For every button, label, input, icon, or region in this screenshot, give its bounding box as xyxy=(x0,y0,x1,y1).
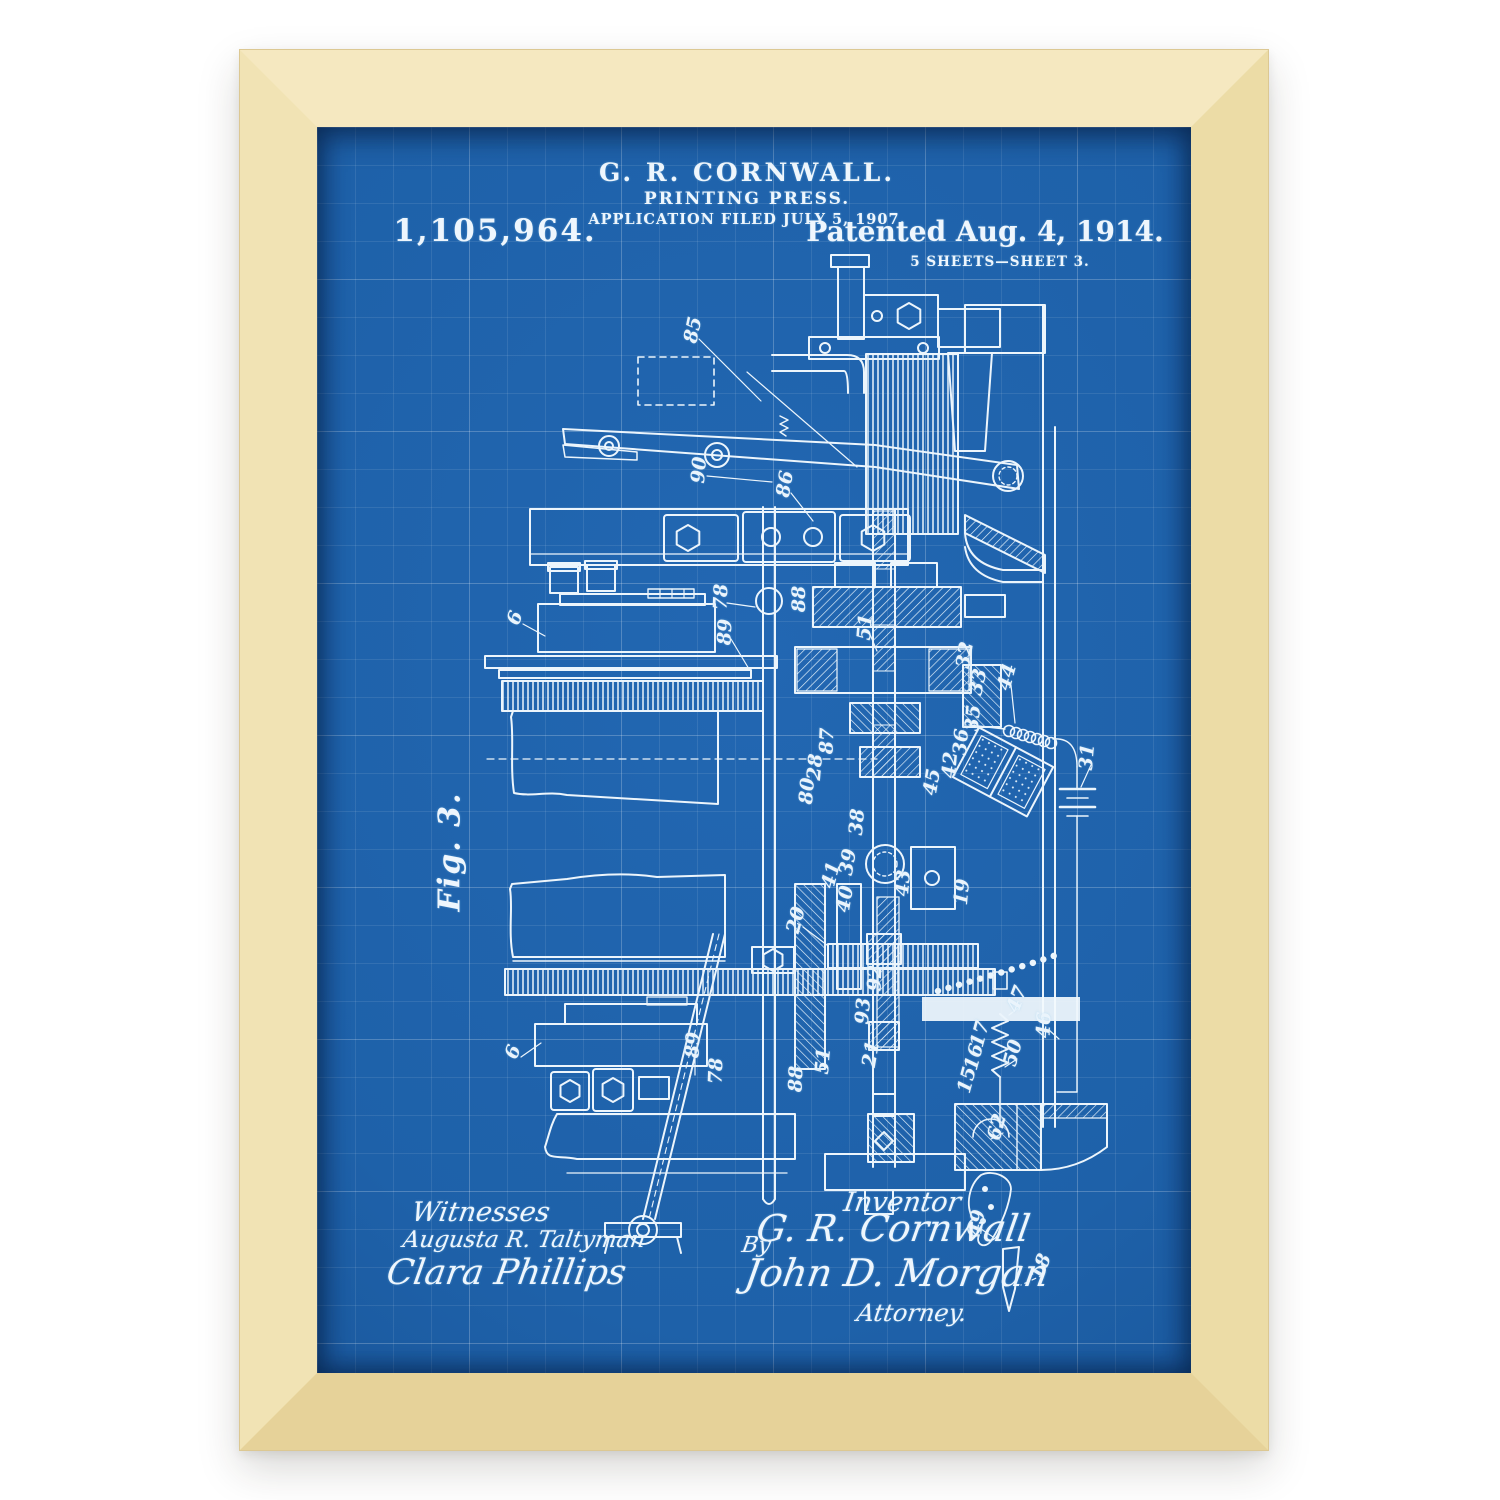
witnesses-heading: Witnesses xyxy=(410,1197,553,1228)
part-label-38: 38 xyxy=(845,808,869,836)
patent-drawing xyxy=(317,127,1191,1373)
part-label-32: 32 xyxy=(952,640,978,670)
sheet-number-line: 5 SHEETS—SHEET 3. xyxy=(910,254,1089,270)
part-label-31: 31 xyxy=(1075,743,1099,771)
part-label-92: 92 xyxy=(864,964,887,991)
blueprint-sheet: G. R. CORNWALL. PRINTING PRESS. APPLICAT… xyxy=(317,127,1191,1373)
part-label-43: 43 xyxy=(891,869,915,897)
part-label-80: 80 xyxy=(795,777,819,805)
product-photo: G. R. CORNWALL. PRINTING PRESS. APPLICAT… xyxy=(0,0,1500,1500)
part-label-89: 89 xyxy=(714,618,737,645)
part-label-21: 21 xyxy=(858,1039,884,1069)
part-label-86: 86 xyxy=(772,469,798,499)
part-label-78: 78 xyxy=(705,1057,728,1084)
part-label-51: 51 xyxy=(853,613,877,641)
part-label-90: 90 xyxy=(687,456,711,484)
figure-label: Fig. 3. xyxy=(433,792,468,912)
attorney-signature: John D. Morgan xyxy=(742,1251,1053,1295)
patent-number: 1,105,964. xyxy=(393,213,596,249)
part-label-40: 40 xyxy=(832,884,858,914)
inventor-signature: G. R. Cornwall xyxy=(754,1207,1033,1250)
patent-date-line: Patented Aug. 4, 1914. xyxy=(806,215,1163,248)
patent-inventor-line: G. R. CORNWALL. xyxy=(599,158,895,187)
part-label-87: 87 xyxy=(816,727,839,754)
part-label-78: 78 xyxy=(710,583,733,610)
witness-signature-2: Clara Phillips xyxy=(384,1253,629,1293)
part-label-51: 51 xyxy=(811,1047,835,1075)
part-label-46: 46 xyxy=(1033,1011,1056,1038)
wooden-picture-frame: G. R. CORNWALL. PRINTING PRESS. APPLICAT… xyxy=(240,50,1268,1450)
part-label-19: 19 xyxy=(950,878,974,906)
part-label-45: 45 xyxy=(919,767,945,797)
part-label-88: 88 xyxy=(785,1065,808,1092)
attorney-heading: Attorney. xyxy=(855,1299,969,1327)
patent-title-line: PRINTING PRESS. xyxy=(644,189,850,209)
part-label-88: 88 xyxy=(788,586,810,612)
part-label-35: 35 xyxy=(961,704,985,732)
part-label-89: 89 xyxy=(682,1031,705,1058)
witness-signature-1: Augusta R. Taltyman xyxy=(401,1227,647,1253)
part-label-93: 93 xyxy=(851,997,875,1025)
